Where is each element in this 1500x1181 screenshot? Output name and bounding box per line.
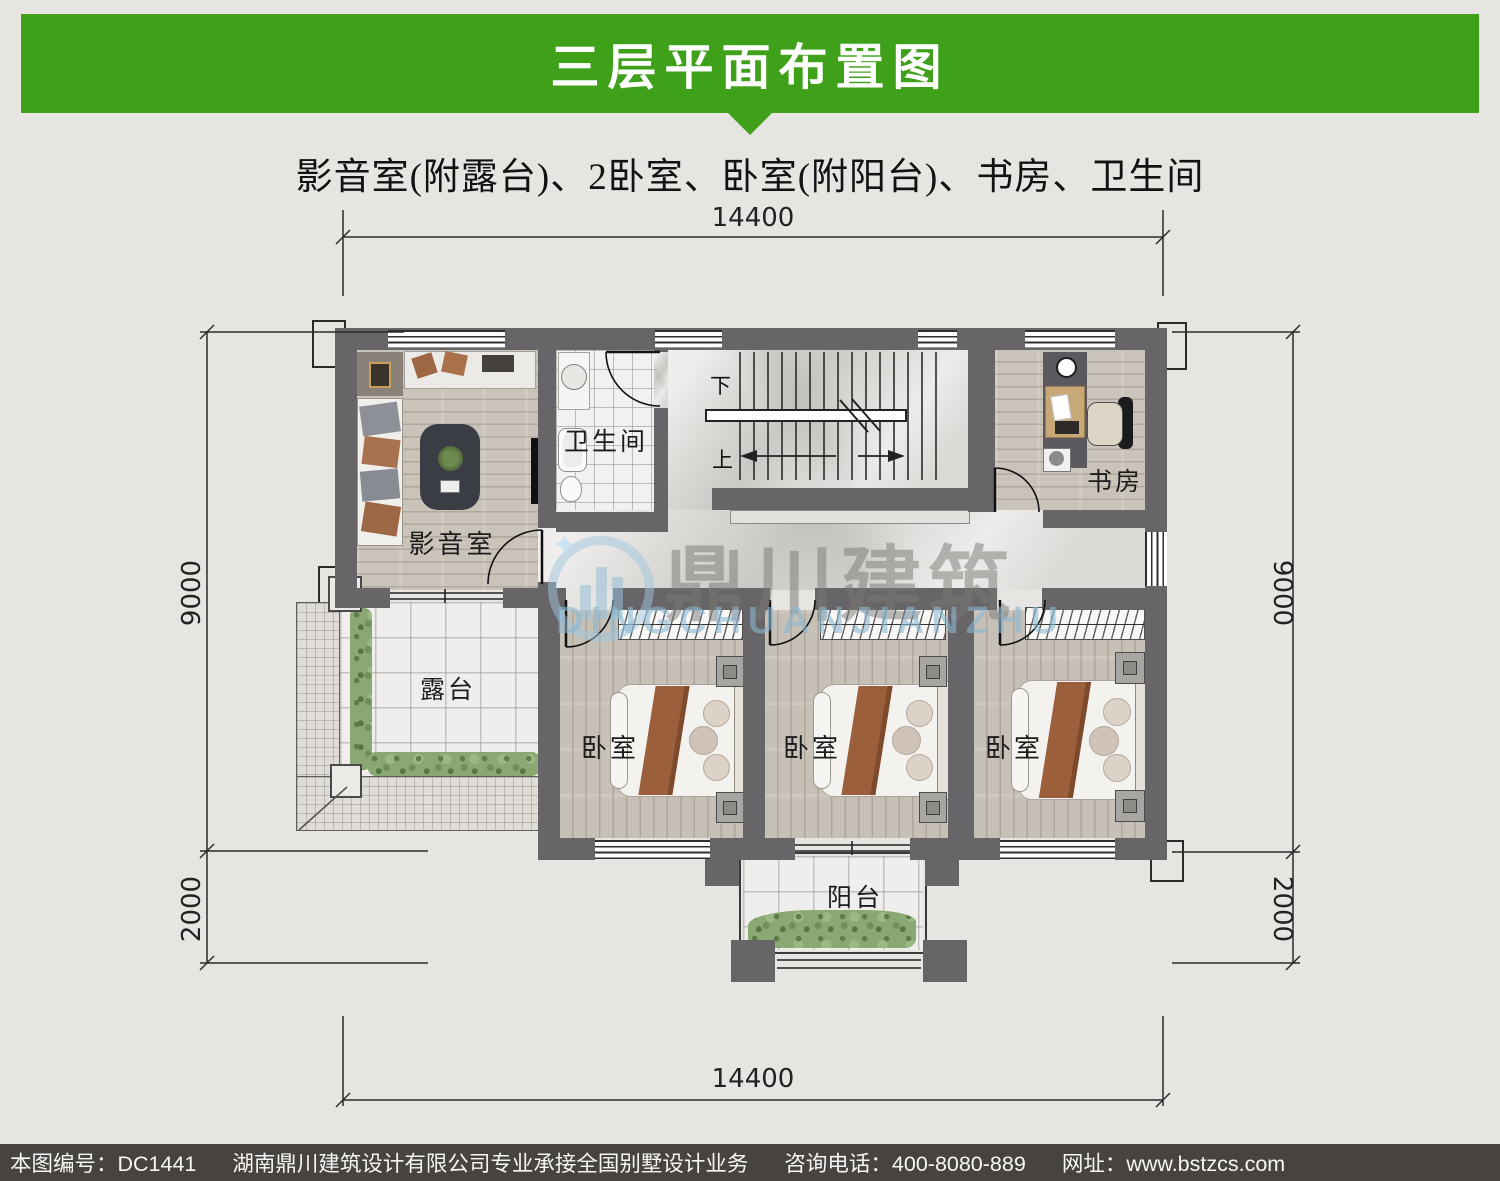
wall-bottom-2 [710, 838, 795, 860]
media-chaise-tray [482, 355, 514, 372]
bedroom3-label: 卧室 [974, 728, 1054, 765]
terrace-post-bottom [330, 764, 362, 798]
wall-bedroom1-left [538, 588, 560, 845]
website-line: 网址：www.bstzcs.com [1062, 1147, 1285, 1178]
stair-up-label: 上 [712, 444, 733, 474]
stair-landing-strip [730, 510, 970, 524]
bedroom1-nightstand [716, 792, 744, 823]
wall-media-divider-upper [538, 348, 556, 528]
wall-left [335, 328, 357, 600]
study-desk-paper [1050, 394, 1072, 422]
media-sofa-cushion [359, 402, 401, 437]
wardrobe-rail [1026, 624, 1144, 626]
wall-corridor-bed-3 [815, 588, 974, 610]
bed-pillow [1103, 754, 1131, 782]
wall-bottom-3 [910, 838, 1000, 860]
window-stair-top [655, 330, 722, 348]
bed-pillow [703, 754, 730, 781]
bath-sink-bowl [561, 364, 587, 390]
study-lamp [1056, 357, 1077, 378]
window-corridor-right [1145, 532, 1167, 586]
dim-right-2000: 2000 [1267, 874, 1297, 944]
wall-below-stairs [712, 488, 970, 510]
wardrobe-rail [619, 624, 742, 626]
wall-corridor-bed-2 [613, 588, 770, 610]
study-chair-seat [1087, 402, 1123, 446]
wardrobe-rail [821, 624, 945, 626]
bedroom3-wardrobe [1025, 607, 1145, 640]
media-sofa-cushion [361, 501, 401, 536]
bath-door-opening [654, 352, 668, 408]
window-study-top [1025, 330, 1115, 348]
bedroom2-nightstand [919, 656, 947, 687]
study-desk-tablet [1055, 421, 1079, 434]
wall-stair-study [968, 328, 995, 512]
media-table-tray [440, 480, 460, 493]
company-line: 湖南鼎川建筑设计有限公司专业承接全国别墅设计业务 [232, 1147, 748, 1178]
media-sofa-cushion [360, 468, 400, 501]
wall-bedroom-divider-2 [948, 610, 974, 845]
bedroom2-wardrobe [820, 607, 946, 640]
dim-left-9000: 9000 [177, 558, 207, 628]
wall-media-bottom-1 [335, 588, 390, 608]
bed-pillow [1103, 698, 1131, 726]
media-table-plant [438, 446, 463, 471]
wall-bath-bottom [556, 512, 668, 532]
dim-top: 14400 [693, 203, 813, 233]
study-label: 书房 [1078, 462, 1152, 498]
wall-bottom-1 [538, 838, 595, 860]
terrace-label: 露台 [408, 670, 488, 706]
balcony-label: 阳台 [816, 878, 894, 914]
footer-bar: 本图编号：DC1441 湖南鼎川建筑设计有限公司专业承接全国别墅设计业务 咨询电… [0, 1144, 1500, 1181]
bed-pillow [689, 726, 718, 755]
wall-corridor-bed-5 [1042, 588, 1145, 610]
terrace-hedge-bottom [368, 752, 540, 776]
wall-bedroom-divider-1 [743, 610, 765, 845]
phone-line: 咨询电话：400-8080-889 [784, 1147, 1025, 1178]
bedroom2-label: 卧室 [772, 728, 852, 765]
wall-right [1145, 328, 1167, 860]
bath-toilet [560, 476, 582, 502]
study-printer-dial [1049, 451, 1064, 466]
stair-down-label: 下 [710, 370, 731, 400]
dim-left-2000: 2000 [177, 874, 207, 944]
bed-pillow [892, 726, 921, 755]
floor-plan: 下 上 影音室 卫生间 书房 露台 卧室 卧室 卧室 阳台 14400 1440… [0, 0, 1500, 1181]
media-tv [531, 438, 538, 504]
drawing-number: 本图编号：DC1441 [10, 1147, 196, 1178]
window-bedroom3-bottom [1000, 840, 1115, 859]
bedroom1-nightstand [716, 656, 744, 687]
window-bedroom1-bottom [595, 840, 710, 859]
balcony-column-left [731, 940, 775, 982]
dim-bottom: 14400 [693, 1064, 813, 1094]
wall-media-bottom-2 [503, 588, 538, 608]
window-media-top [388, 330, 505, 348]
bed-pillow [703, 700, 730, 727]
media-room-label: 影音室 [406, 524, 498, 561]
bedroom3-nightstand [1115, 790, 1145, 822]
window-hall-top [918, 330, 957, 348]
bed-pillow [906, 754, 933, 781]
bedroom2-nightstand [919, 792, 947, 823]
wall-corridor-bed-4 [974, 588, 997, 610]
bedroom3-nightstand [1115, 652, 1145, 684]
bed-pillow [906, 700, 933, 727]
dim-right-9000: 9000 [1267, 558, 1297, 628]
bathroom-label: 卫生间 [558, 422, 654, 458]
bedroom1-label: 卧室 [570, 728, 650, 765]
balcony-column-right [923, 940, 967, 982]
media-sofa-cushion [361, 436, 400, 468]
terrace-hedge-left [350, 608, 372, 770]
bedroom1-wardrobe [618, 607, 743, 640]
media-chaise-pillow [441, 351, 468, 376]
media-corner-frame [369, 362, 391, 388]
wall-bottom-4 [1115, 838, 1167, 860]
bed-pillow [1089, 726, 1119, 756]
